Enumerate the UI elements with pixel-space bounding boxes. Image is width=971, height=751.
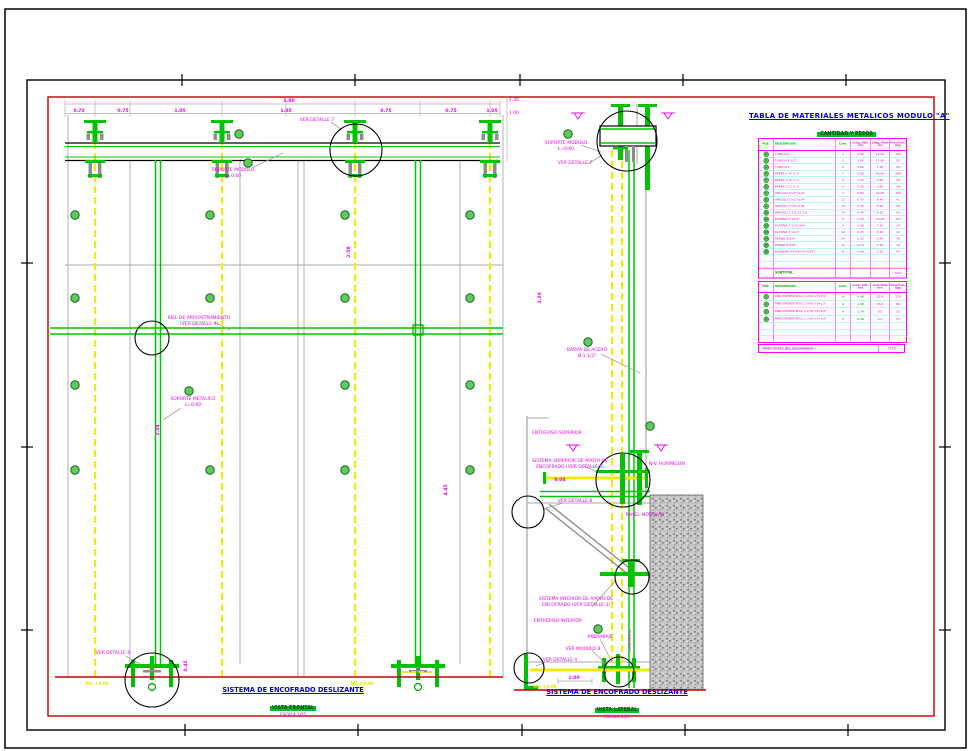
desc-cell: PAÑO MADERA PLAC. C 4'x8' x E=1/2": [774, 301, 836, 308]
cant-cell: 4: [836, 151, 852, 157]
dim-top-5: 0.75: [380, 108, 391, 114]
area-total-cell: 26.9: [871, 301, 891, 308]
pos-cell: 4: [759, 171, 774, 177]
peso-cell: 31: [890, 308, 906, 315]
pos-cell: 3: [759, 308, 774, 315]
long-unit-cell: 0.60: [851, 184, 871, 190]
materials-table-body: 1 TUBO Ø 2" 4 5.80 23.20 163 2 TUBO Ø 1 …: [759, 151, 906, 255]
pos-marker-icon: 4: [763, 171, 769, 177]
long-unit-cell: 4.48: [851, 316, 871, 323]
total-weight-bar: PESO TOTAL DEL ENCOFRADO = 7718: [758, 344, 971, 362]
materials-table-subtitle: CANTIDAD Y PESOS: [817, 132, 876, 137]
cant-cell: 4: [836, 308, 852, 315]
long-total-cell: 1.96: [871, 242, 891, 248]
dim-right-2: 1.00: [509, 110, 519, 116]
cant-cell: 14: [836, 293, 852, 300]
peso-cell: 95: [890, 249, 906, 255]
label-soporte-modulo-l: L=0.60: [225, 173, 241, 179]
pos-marker-icon: 1: [763, 151, 769, 157]
frontal-view-title-block: SISTEMA DE ENCOFRADO DESLIZANTE VISTA FR…: [198, 686, 388, 717]
label-niv-hormigon: NIV. HORMIGON: [649, 461, 685, 467]
long-unit-cell: 4.48: [851, 293, 871, 300]
table-row: 1 PAÑO MADERA PLAC. C 4'x8' x E=3/4" 14 …: [759, 293, 906, 301]
label-sistema-sup: SISTEMA SUPERIOR DE APOYO DE: [532, 458, 608, 464]
label-ver-detalle-4: VER DETALLE 4: [543, 657, 578, 663]
long-unit-cell: 0.70: [851, 197, 871, 203]
label-compuerta: COMPUERTA: [627, 629, 632, 653]
peso-cell: 219: [890, 293, 906, 300]
peso-cell: 58: [890, 177, 906, 183]
table-row: 4 PAÑO MADERA PLAC. C 2'x8' x E=1/2" 2 4…: [759, 316, 906, 324]
dim-004: 0.04: [554, 477, 565, 483]
label-lat-ver-detalle-7: VER DETALLE 7: [558, 160, 593, 166]
long-unit-cell: 0.25: [851, 229, 871, 235]
col-long-total: Long. Total (m): [871, 139, 891, 150]
pos-marker-icon: 9: [763, 203, 769, 209]
long-total-cell: 20.00: [871, 216, 891, 222]
label-ver-detalle-7: VER DETALLE 7: [300, 117, 335, 123]
dim-top-7: 1.05: [486, 108, 497, 114]
long-unit-cell: 0.14: [851, 242, 871, 248]
pos-cell: 14: [759, 236, 774, 242]
frontal-leaders: [126, 122, 342, 664]
empty-row: [759, 262, 906, 269]
lateral-view: SOPORTE MODULO L=0.60 VER DETALLE 7 BARR…: [512, 104, 706, 690]
col-long-unit: Long. Unit. (m): [851, 139, 871, 150]
label-entrepiso-inf: ENTREPISO INFERIOR: [534, 618, 582, 624]
label-entrepiso-sup: ENTREPISO SUPERIOR: [532, 430, 582, 436]
label-sistema-inf: SISTEMA INFERIOR DE APOYO DE: [539, 596, 613, 602]
cant-cell: 14: [836, 210, 852, 216]
desc-cell: PAÑO MADERA PLAC. C 2'x8' x E=1/2": [774, 316, 836, 323]
level-text-left: NV. ±0.00: [85, 681, 108, 686]
peso-cell: 25: [890, 210, 906, 216]
dim-rot-445: 4.45: [443, 484, 449, 495]
peso-cell: 80: [890, 301, 906, 308]
desc-cell: TUBO Ø 2": [774, 151, 836, 157]
wood-panels-table: POS. DESCRIPCION Cant. Long. Unit. (m) A…: [758, 281, 971, 405]
desc-cell: TUBO Ø 1": [774, 164, 836, 170]
cant-cell: 12: [836, 197, 852, 203]
desc-cell: PERFIL C 3" x 2": [774, 184, 836, 190]
pos-marker-icon: 16: [763, 249, 769, 255]
label-lat-soporte-l: L=0.60: [558, 146, 574, 152]
cant-cell: 14: [836, 229, 852, 235]
dim-overall: 5.80: [283, 98, 294, 104]
pos-cell: 16: [759, 249, 774, 255]
frontal-construction-lines: [65, 115, 503, 677]
peso-cell: 300: [890, 190, 906, 196]
wood-table-header: POS. DESCRIPCION Cant. Long. Unit. (m) A…: [759, 282, 906, 293]
desc-cell: ANGULO 2"x2"x1/8": [774, 203, 836, 209]
cant-cell: 6: [836, 301, 852, 308]
col-peso: Peso Parc. (kg): [890, 282, 906, 292]
peso-cell: 580: [890, 171, 906, 177]
desc-cell: PERFIL C 6" x 2": [774, 171, 836, 177]
long-unit-cell: 5.80: [851, 158, 871, 164]
frontal-guide-rails: [156, 160, 421, 664]
dim-rot-045: 0.45: [183, 660, 189, 671]
peso-cell: 12: [890, 229, 906, 235]
cant-cell: 2: [836, 316, 852, 323]
long-total-cell: 6.30: [871, 210, 891, 216]
table-row: 2 PAÑO MADERA PLAC. C 4'x8' x E=1/2" 6 4…: [759, 301, 906, 309]
desc-cell: PERFIL C 4" x 2": [774, 177, 836, 183]
pos-cell: 1: [759, 151, 774, 157]
peso-cell: 163: [890, 151, 906, 157]
long-unit-cell: 5.80: [851, 171, 871, 177]
dim-top-1: 0.75: [73, 108, 84, 114]
col-descripcion: DESCRIPCION: [774, 139, 836, 150]
peso-cell: 10: [890, 242, 906, 248]
concrete-wall-hatch: [650, 495, 703, 690]
pos-cell: 10: [759, 210, 774, 216]
empty-row: [759, 336, 906, 342]
pos-marker-icon: 14: [763, 236, 769, 242]
peso-cell: 127: [890, 216, 906, 222]
materials-table-title: TABLA DE MATERIALES METALICOS MODULO "A": [749, 112, 944, 120]
long-total-cell: 40.60: [871, 171, 891, 177]
long-unit-cell: 0.40: [851, 249, 871, 255]
lateral-guide-rail: [629, 150, 634, 688]
cant-cell: 6: [836, 184, 852, 190]
long-total-cell: 3.20: [871, 249, 891, 255]
peso-cell: 38: [890, 184, 906, 190]
frontal-view-title: SISTEMA DE ENCOFRADO DESLIZANTE: [198, 686, 388, 694]
peso-cell: 27: [890, 316, 906, 323]
label-soporte-metalico: SOPORTE METALICO: [170, 396, 216, 402]
cant-cell: 4: [836, 223, 852, 229]
lateral-view-subtitle: VISTA LATERAL: [595, 708, 640, 713]
total-weight-label: PESO TOTAL DEL ENCOFRADO =: [759, 347, 817, 351]
cant-cell: 4: [836, 177, 852, 183]
pos-marker-icon: 11: [763, 216, 769, 222]
lateral-view-scale: ESCALA 1/25: [522, 715, 712, 719]
area-total-cell: 9.0: [871, 316, 891, 323]
long-unit-cell: 1.20: [851, 177, 871, 183]
cant-cell: 8: [836, 216, 852, 222]
dim-top-2: 0.75: [117, 108, 128, 114]
long-total-cell: 11.60: [871, 158, 891, 164]
pos-marker-icon: 10: [763, 210, 769, 216]
long-total-cell: 23.20: [871, 151, 891, 157]
col-descripcion: DESCRIPCION: [774, 282, 836, 292]
long-total-cell: 3.60: [871, 184, 891, 190]
pos-marker-icon: 15: [763, 242, 769, 248]
pos-marker-icon: 12: [763, 223, 769, 229]
pos-cell: 3: [759, 164, 774, 170]
peso-cell: 33: [890, 223, 906, 229]
desc-cell: ANGULO 1 1/2"x1 1/2": [774, 210, 836, 216]
long-total-cell: 7.20: [871, 164, 891, 170]
long-total-cell: 40.60: [871, 190, 891, 196]
col-pos: POS.: [759, 139, 774, 150]
area-total-cell: 9.0: [871, 308, 891, 315]
pos-cell: 8: [759, 197, 774, 203]
pos-marker-icon: 7: [763, 190, 769, 196]
col-peso: Peso Parc. (kg): [890, 139, 906, 150]
pos-cell: 9: [759, 203, 774, 209]
pos-cell: 12: [759, 223, 774, 229]
subtotal-row: SUBTOTAL 2997: [759, 268, 906, 278]
total-weight-value: 7718: [879, 345, 905, 352]
pos-marker-icon: 5: [763, 177, 769, 183]
pos-marker-icon: 3: [763, 309, 769, 315]
long-unit-cell: 4.48: [851, 301, 871, 308]
frontal-top-beam: [65, 143, 500, 161]
desc-cell: PAÑO MADERA PLAC. C 4'x8' x E=3/4": [774, 293, 836, 300]
cant-cell: 24: [836, 236, 852, 242]
label-riel-detalle: (VER DETALLE 4): [180, 321, 218, 327]
long-unit-cell: 0.10: [851, 236, 871, 242]
label-andamiaje: ANDAMIAJE: [587, 634, 613, 640]
dim-top-6: 0.75: [445, 108, 456, 114]
dim-rot-258: 2.58: [346, 246, 352, 257]
long-unit-cell: 1.80: [851, 223, 871, 229]
desc-cell: PERNO Ø 3/4": [774, 236, 836, 242]
label-ver-detalle-6: VER DETALLE 6: [96, 650, 131, 656]
pos-cell: 2: [759, 158, 774, 164]
col-pos: POS.: [759, 282, 774, 292]
bracing-rail: [50, 328, 503, 334]
frontal-view-subtitle: VISTA FRONTAL: [270, 706, 316, 711]
lateral-view-title: SISTEMA DE ENCOFRADO DESLIZANTE: [522, 688, 712, 696]
label-soporte-metalico-l: L=0.60: [185, 402, 201, 408]
frontal-yellow-rods: [95, 120, 490, 676]
dim-right-1: 1.30: [509, 97, 519, 103]
label-soporte-modulo: SOPORTE MODULO: [212, 167, 255, 173]
drawing-sheet: 5.80 0.75 0.75 1.05 1.05 0.75 0.75 1.05 …: [0, 0, 971, 751]
pos-marker-icon: 2: [763, 301, 769, 307]
peso-cell: 18: [890, 236, 906, 242]
col-area-total: Area Total (m²): [871, 282, 891, 292]
cant-cell: 2: [836, 164, 852, 170]
desc-cell: PLANCHA A=0.40 E=3/16": [774, 249, 836, 255]
cant-cell: 2: [836, 158, 852, 164]
desc-cell: TUBO Ø 1 1/2": [774, 158, 836, 164]
label-ver-detalle-8: VER DETALLE 8: [558, 498, 593, 504]
cant-cell: 14: [836, 242, 852, 248]
long-unit-cell: 3.60: [851, 164, 871, 170]
pos-marker-icon: 3: [763, 164, 769, 170]
dim-rot-330: 3.30: [537, 292, 543, 303]
label-barra-acero: BARRA DE ACERO: [567, 347, 608, 353]
long-unit-cell: 2.24: [851, 308, 871, 315]
pos-cell: 15: [759, 242, 774, 248]
table-row: 3 PAÑO MADERA PLAC. C 2'x8' x E=3/4" 4 2…: [759, 308, 906, 316]
cant-cell: 7: [836, 171, 852, 177]
pos-cell: 5: [759, 177, 774, 183]
long-total-cell: 2.40: [871, 236, 891, 242]
pos-marker-icon: 13: [763, 229, 769, 235]
long-total-cell: 4.90: [871, 203, 891, 209]
frontal-dim-lines: [65, 97, 507, 162]
label-sistema-inf-2: ENCOFRADO (VER DETALLE 3): [542, 602, 610, 608]
label-lat-soporte: SOPORTE MODULO: [545, 140, 588, 146]
cant-cell: 14: [836, 203, 852, 209]
pos-cell: 7: [759, 190, 774, 196]
dim-rot-204: 2.04: [155, 424, 161, 435]
dim-100: 1.00: [568, 675, 579, 681]
label-panel-modular: PANEL MODULAR: [626, 512, 665, 518]
materials-table-title-block: TABLA DE MATERIALES METALICOS MODULO "A"…: [749, 112, 944, 139]
long-total-cell: 3.50: [871, 229, 891, 235]
pos-cell: 6: [759, 184, 774, 190]
cant-cell: 8: [836, 249, 852, 255]
pos-marker-icon: 6: [763, 184, 769, 190]
pos-cell: 2: [759, 301, 774, 308]
peso-cell: 85: [890, 158, 906, 164]
label-riel: RIEL DE ARRIOSTRAMIENTO: [168, 315, 231, 321]
lateral-position-markers: [564, 130, 654, 633]
long-unit-cell: 5.80: [851, 190, 871, 196]
long-total-cell: 7.20: [871, 223, 891, 229]
long-total-cell: 8.40: [871, 197, 891, 203]
frontal-jack-posts: [84, 120, 501, 178]
col-cant: Cant.: [836, 282, 852, 292]
pos-cell: 1: [759, 293, 774, 300]
desc-cell: PLATINA 1"x1/4": [774, 229, 836, 235]
dim-top-4: 1.05: [280, 108, 291, 114]
frontal-view: 5.80 0.75 0.75 1.05 1.05 0.75 0.75 1.05 …: [50, 97, 519, 707]
foot-bracket-right: [391, 656, 445, 691]
pos-marker-icon: 2: [763, 158, 769, 164]
dim-top-3: 1.05: [174, 108, 185, 114]
pos-cell: 13: [759, 229, 774, 235]
peso-cell: 41: [890, 197, 906, 203]
cant-cell: 7: [836, 190, 852, 196]
peso-cell: 36: [890, 164, 906, 170]
lateral-view-title-block: SISTEMA DE ENCOFRADO DESLIZANTE VISTA LA…: [522, 688, 712, 719]
subtotal-value: 2997: [890, 269, 906, 278]
pos-cell: 4: [759, 316, 774, 323]
long-unit-cell: 0.35: [851, 203, 871, 209]
col-long-unit: Long. Unit. (m): [851, 282, 871, 292]
diagonal-braces: [545, 504, 633, 575]
desc-cell: PERNO Ø 5/8": [774, 242, 836, 248]
desc-cell: PAÑO MADERA PLAC. C 2'x8' x E=3/4": [774, 308, 836, 315]
desc-cell: ANGULO 2"x2"x1/4": [774, 197, 836, 203]
frontal-view-scale: ESCALA 1/25: [198, 713, 388, 717]
label-barra-acero-d: Ø 1 1/2": [578, 352, 597, 359]
subtotal-label: SUBTOTAL: [774, 269, 836, 278]
lateral-leaders: [536, 145, 640, 669]
pos-marker-icon: 4: [763, 316, 769, 322]
desc-cell: PLATINA 2"x1/4": [774, 216, 836, 222]
pos-marker-icon: 1: [763, 294, 769, 300]
pos-marker-icon: 8: [763, 197, 769, 203]
lateral-yellow-rods: [612, 150, 622, 668]
long-total-cell: 4.80: [871, 177, 891, 183]
long-unit-cell: 2.50: [851, 216, 871, 222]
pos-cell: 11: [759, 216, 774, 222]
peso-cell: 24: [890, 203, 906, 209]
desc-cell: ANGULO 3"x3"x1/4": [774, 190, 836, 196]
label-ver-modulo-b: VER MODULO B: [565, 646, 600, 652]
label-sistema-sup-2: ENCOFRADO (VER DETALLE 5): [536, 464, 604, 470]
long-unit-cell: 0.45: [851, 210, 871, 216]
long-unit-cell: 5.80: [851, 151, 871, 157]
materials-table-header: POS. DESCRIPCION Cant. Long. Unit. (m) L…: [759, 139, 906, 151]
wood-table-body: 1 PAÑO MADERA PLAC. C 4'x8' x E=3/4" 14 …: [759, 293, 906, 323]
col-cant: Cant.: [836, 139, 852, 150]
desc-cell: PLATINA 1 1/2"x1/4": [774, 223, 836, 229]
area-total-cell: 62.8: [871, 293, 891, 300]
frontal-position-markers: [71, 130, 474, 474]
